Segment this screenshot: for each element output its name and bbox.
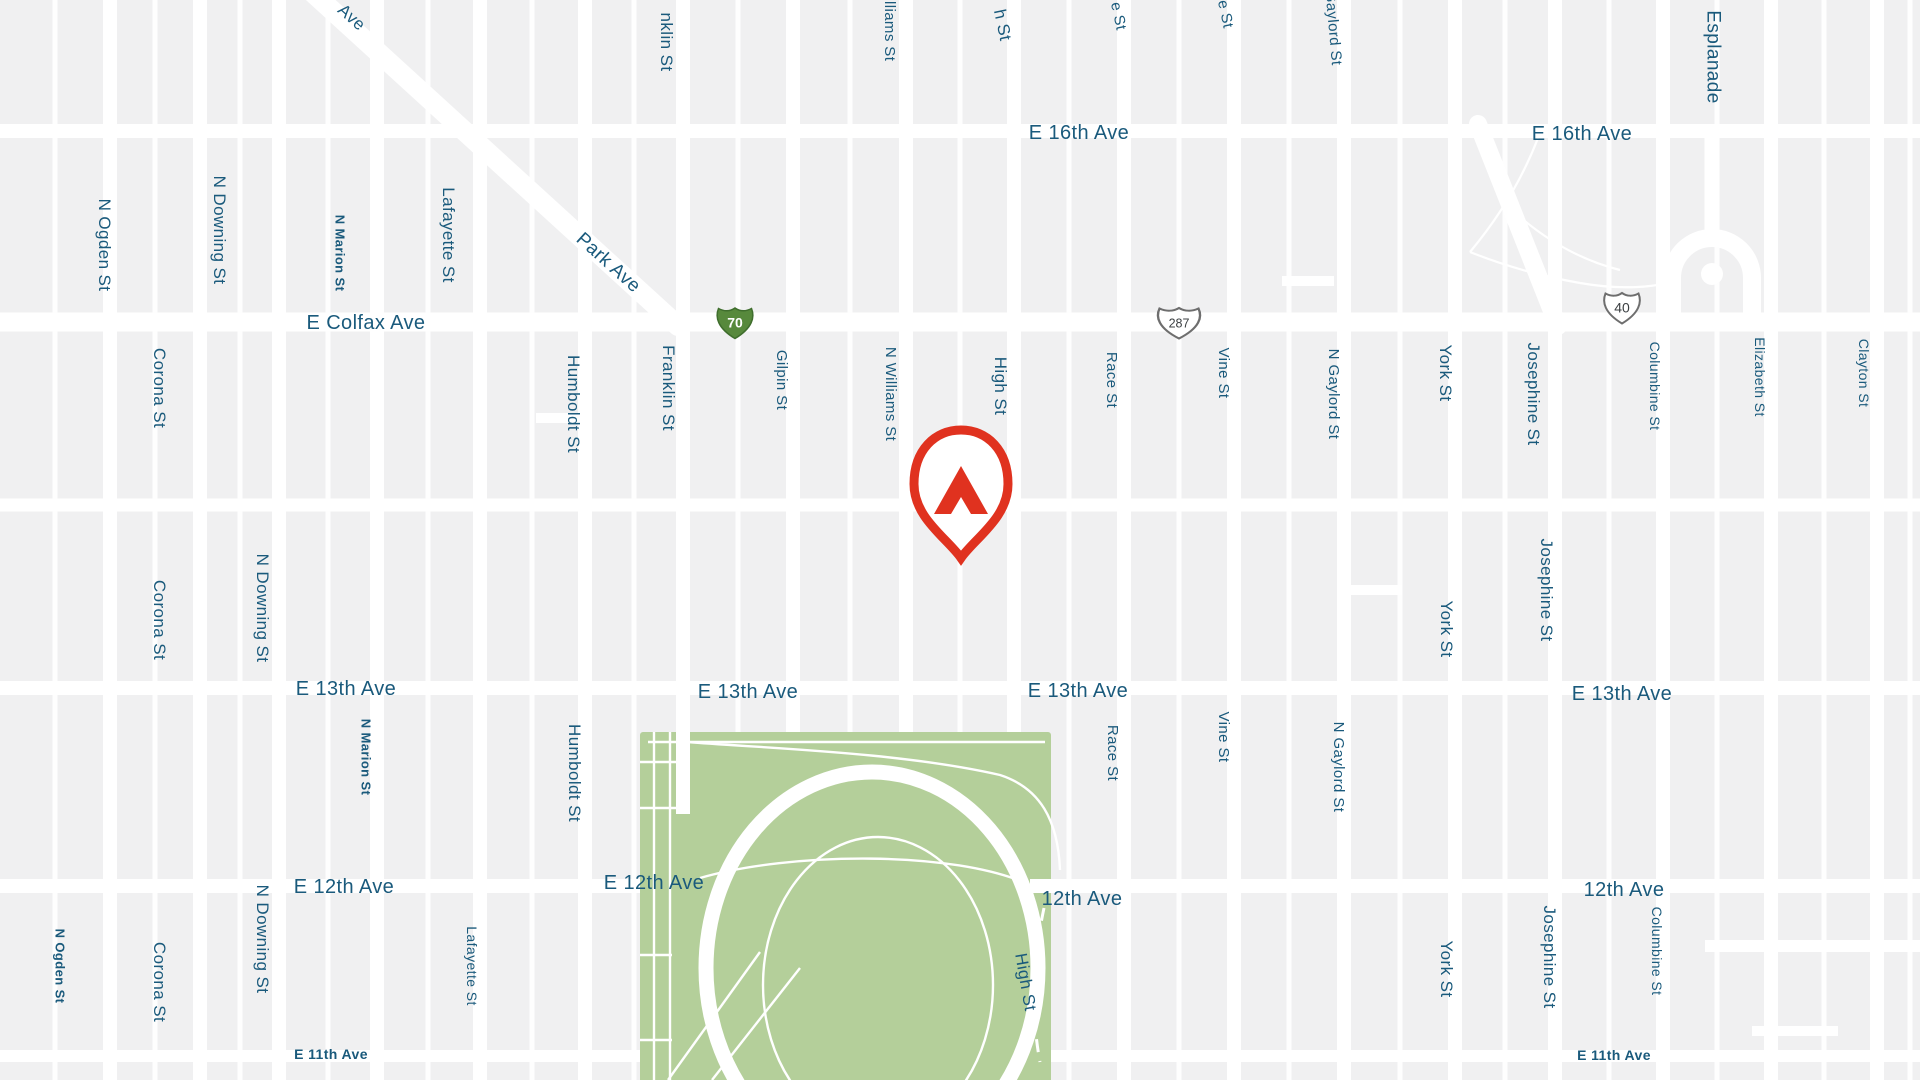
alley-lane [1503,0,1508,1080]
street-label: Vine St [1215,712,1232,763]
street-label: N Downing St [253,554,272,663]
street-label: E 11th Ave [1577,1047,1651,1063]
street-label: E 13th Ave [1572,683,1672,705]
street-label: N Marion St [332,215,347,292]
street-label: Corona St [150,942,169,1022]
street-label: High St [991,357,1010,416]
park-road-entry [676,732,690,814]
alley-lane [1607,0,1612,1080]
street-label: Esplanade [1702,10,1723,103]
route-shield-number: 287 [1169,317,1190,331]
street-label: N Downing St [253,885,272,994]
street-vertical [103,0,117,1080]
alley-lane [1287,0,1292,1080]
street-label: Josephine St [1537,538,1556,641]
alley-lane [632,0,637,1080]
street-label: Vine St [1215,348,1232,399]
street-label: nklin St [657,13,676,72]
street-vertical [272,0,286,1080]
alley-lane [1822,0,1827,1080]
street-label: E 12th Ave [294,876,394,898]
route-shield-number: 70 [727,315,743,331]
alley-lane [326,0,331,1080]
street-label: Humboldt St [565,724,584,822]
street-label: Franklin St [659,345,678,431]
street-stub [1344,585,1402,595]
street-label: E 13th Ave [698,681,798,703]
alley-lane [53,0,58,1080]
street-label: Williams St [881,0,898,62]
alley-lane [426,0,431,1080]
street-vertical [578,0,592,1080]
street-vertical [1764,0,1778,1080]
street-label: E 16th Ave [1532,123,1632,145]
street-label: E 16th Ave [1029,122,1129,144]
street-label: Gilpin St [773,350,790,411]
alley-lane [1398,0,1403,1080]
street-label: Columbine St [1647,342,1663,431]
esplanade-fountain [1701,263,1723,285]
street-label: York St [1436,345,1455,402]
alley-lane [238,0,243,1080]
map-svg: 7028740N Ogden StN Downing StN Marion St… [0,0,1920,1080]
street-label: 12th Ave [1584,879,1665,901]
street-label: E 13th Ave [296,678,396,700]
street-label: E 12th Ave [604,872,704,894]
alley-lane [1067,0,1072,1080]
street-label: Race St [1103,352,1120,409]
street-stub [1752,1026,1838,1036]
alley-lane [1177,0,1182,1080]
street-label: E Colfax Ave [307,312,426,334]
street-label: Humboldt St [564,355,583,453]
route-shield-number: 40 [1614,300,1630,316]
alley-lane [153,0,158,1080]
street-vertical [193,0,207,1080]
street-vertical [370,0,384,1080]
street-stub [1282,276,1334,286]
street-label: Columbine St [1649,907,1665,996]
street-label: York St [1437,941,1456,998]
street-label: Corona St [150,348,169,428]
street-label: Elizabeth St [1752,337,1768,417]
street-label: Josephine St [1540,905,1559,1008]
street-vertical [1227,0,1241,1080]
street-label: York St [1437,601,1456,658]
street-label: Clayton St [1856,339,1872,408]
street-label: 12th Ave [1042,888,1123,910]
street-vertical [1448,0,1462,1080]
street-label: Lafayette St [439,187,458,283]
street-label: N Marion St [358,719,373,796]
street-label: N Williams St [882,347,899,442]
street-vertical [1337,0,1351,1080]
alley-lane [1908,0,1913,1080]
street-label: N Gaylord St [1325,349,1342,440]
street-vertical [1117,0,1131,1080]
street-label: Lafayette St [464,926,480,1006]
street-vertical [1870,0,1884,1080]
street-label: Race St [1104,725,1121,782]
esplanade-stem [1705,124,1720,246]
park-area [640,732,1051,1080]
street-label: N Ogden St [95,199,114,292]
street-label: E 11th Ave [294,1046,368,1062]
street-label: Corona St [150,580,169,660]
street-label: N Ogden St [52,929,67,1004]
map-canvas: 7028740N Ogden StN Downing StN Marion St… [0,0,1920,1080]
street-label: Josephine St [1524,342,1543,445]
street-stub [1705,940,1920,952]
alley-lane [530,0,535,1080]
street-label: E 13th Ave [1028,680,1128,702]
street-label: N Gaylord St [1330,722,1347,813]
street-label: N Downing St [210,176,229,285]
